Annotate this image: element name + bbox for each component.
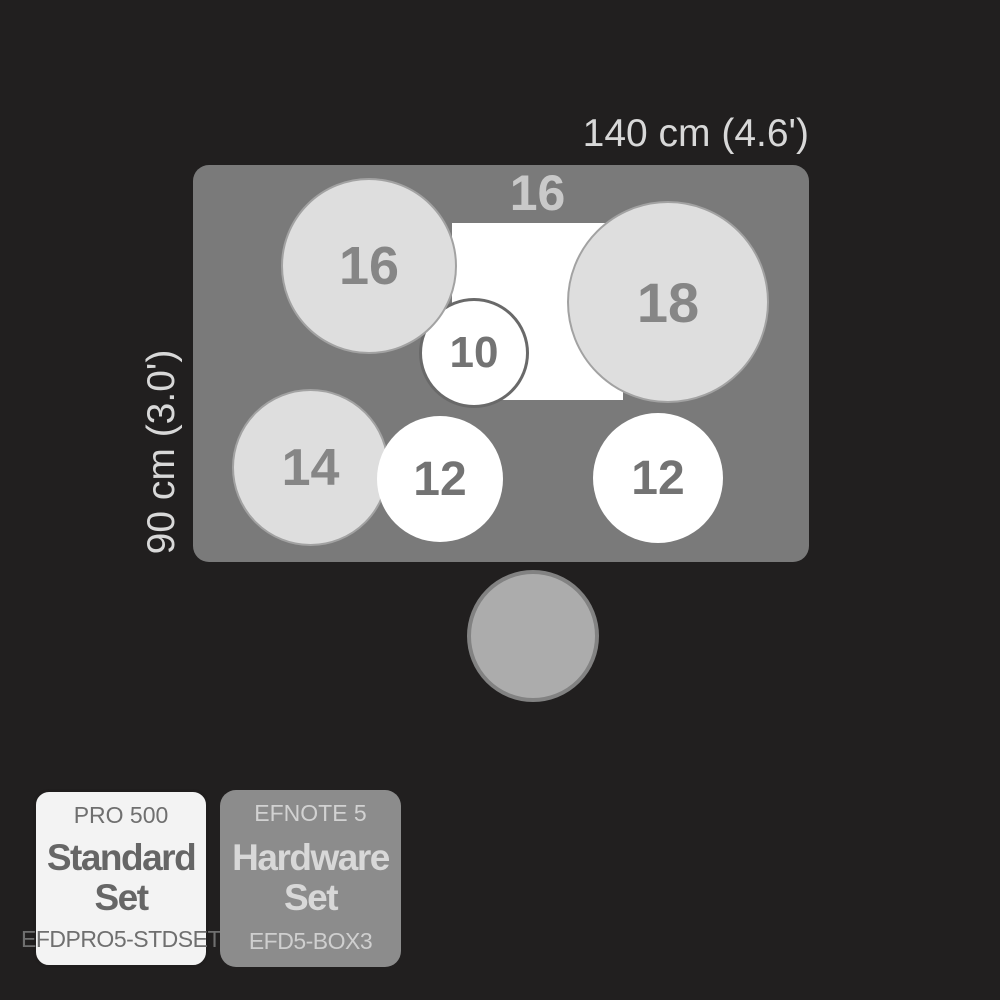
tom-pad-12-left: 12	[377, 416, 503, 542]
pad-size-label: 10	[450, 328, 499, 378]
kick-size-label: 16	[452, 168, 623, 218]
pad-size-label: 18	[637, 270, 699, 335]
crash-pad-16: 16	[281, 178, 457, 354]
badge-title: Standard Set	[40, 829, 202, 926]
floor-tom-pad-14: 14	[232, 389, 389, 546]
standard-set-badge: PRO 500 Standard Set EFDPRO5-STDSET	[33, 789, 209, 968]
tom-pad-12-right: 12	[593, 413, 723, 543]
height-dimension-label: 90 cm (3.0')	[140, 252, 186, 652]
badge-series-label: EFNOTE 5	[254, 800, 366, 827]
pad-size-label: 16	[339, 235, 399, 297]
pad-size-label: 12	[413, 452, 466, 507]
pad-size-label: 14	[282, 438, 340, 498]
width-dimension-label: 140 cm (4.6')	[409, 112, 809, 156]
drum-kit-footprint-page: 140 cm (4.6') 90 cm (3.0') 16 10 16 18 1…	[0, 0, 1000, 1000]
pad-size-label: 12	[631, 451, 684, 506]
badge-title: Hardware Set	[224, 827, 397, 928]
drum-throne	[467, 570, 599, 702]
hardware-set-badge: EFNOTE 5 Hardware Set EFD5-BOX3	[220, 790, 401, 967]
ride-pad-18: 18	[567, 201, 769, 403]
badge-series-label: PRO 500	[74, 802, 169, 829]
badge-code: EFDPRO5-STDSET	[21, 926, 221, 953]
badge-code: EFD5-BOX3	[249, 928, 372, 955]
